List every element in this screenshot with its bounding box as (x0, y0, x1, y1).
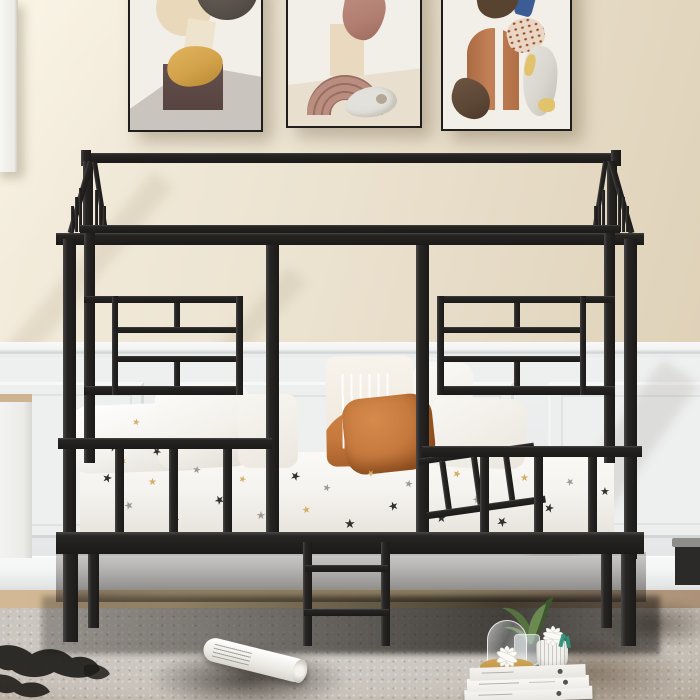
ladder-stile-right (381, 542, 390, 646)
bed-gable-left-slat (75, 197, 78, 232)
book-logo-dot (563, 680, 568, 685)
headboard-right-divider-h2 (444, 356, 580, 362)
book-stack (463, 664, 594, 700)
ladder-stile-left (303, 542, 312, 646)
nightstand-left (0, 394, 32, 558)
star-motif: ★ (256, 510, 266, 521)
wall-art-right (441, 0, 572, 131)
book-logo-dot (556, 691, 561, 696)
headboard-right-divider-v2-bottom (514, 362, 520, 386)
bed-gable-right-slat (602, 190, 605, 230)
guardrail-right-bar (480, 457, 489, 535)
art2-stone-hole (376, 94, 387, 104)
guardrail-right-bar (534, 457, 543, 535)
star-motif: ★ (344, 518, 356, 531)
ladder-rung-lower (304, 609, 389, 616)
book-spine-text-line (529, 681, 555, 683)
partial-canvas-top-left (0, 0, 18, 172)
bed-leg-back-left (88, 554, 99, 628)
headboard-left-top-bar (84, 296, 242, 303)
room-scene: ★ ★ ★ ★ ★ ★ ★ ★ ★ ★ ★ ★ ★ ★ ★ ★ ★ ★ ★ ★ … (0, 0, 700, 700)
bed-roof-ridge-beam (86, 153, 616, 163)
wall-art-left (128, 0, 263, 132)
headboard-left-bottom-bar (84, 386, 242, 395)
bed-gable-right-slat (622, 197, 625, 232)
bench-top-surface (672, 538, 700, 547)
star-motif: ★ (131, 418, 141, 428)
guardrail-left-bar (223, 449, 232, 535)
bench-body (675, 547, 700, 585)
bed-top-rail-front (56, 233, 644, 245)
guardrail-right-bar (588, 457, 597, 535)
decor-book-stack-group (460, 594, 640, 700)
guardrail-left-top-rail (58, 438, 272, 449)
star-motif: ★ (403, 479, 414, 490)
footboard-slat (503, 452, 516, 500)
lotus-flower (488, 642, 526, 668)
headboard-left-divider-v2-top (174, 303, 180, 327)
bed-post-front-left (63, 239, 76, 559)
bed-gable-left-slat (95, 190, 98, 230)
headboard-right-bottom-bar (437, 386, 615, 395)
guardrail-left-bar (169, 449, 178, 535)
bed-base-rail (56, 532, 644, 554)
book-spine-text-line (482, 672, 514, 674)
book-spine-text-line (478, 694, 512, 696)
guardrail-right-top-rail (422, 446, 642, 457)
headboard-right-top-bar (437, 296, 615, 303)
star-motif: ★ (148, 478, 157, 488)
star-motif: ★ (301, 505, 312, 516)
headboard-right-divider-v1 (580, 296, 586, 395)
bed-post-back-right (604, 233, 615, 463)
bed-post-front-right (624, 239, 637, 559)
ladder-rung-upper (305, 565, 388, 572)
art3-yellow-accent-bottom (538, 98, 555, 112)
book-logo-dot (558, 669, 563, 674)
bed-gable-left-slat (71, 206, 74, 232)
headboard-left-divider-v2-bottom (174, 362, 180, 386)
bench-right (672, 538, 700, 586)
headboard-left-right-edge (236, 296, 243, 395)
headboard-right-left-edge (437, 296, 444, 395)
nightstand-left-wood-top (0, 394, 32, 402)
book-spine-text-line (479, 682, 519, 684)
chair-rail-molding (0, 342, 700, 357)
bed-post-back-left (84, 233, 95, 463)
bed-gable-right-slat (626, 206, 629, 232)
footboard-slat (439, 461, 452, 509)
headboard-left-divider-v1 (112, 296, 118, 395)
star-motif: ★ (600, 486, 610, 497)
bed-post-mid-left (266, 245, 279, 545)
headboard-left-divider-h1 (118, 327, 236, 333)
headboard-right-divider-h1 (444, 327, 580, 333)
star-motif: ★ (191, 465, 202, 476)
art3-arch-gap (495, 28, 503, 110)
headboard-right-divider-v2-top (514, 303, 520, 327)
guardrail-left-bar (115, 449, 124, 535)
wall-art-middle (286, 0, 422, 128)
crayon-teal (565, 636, 571, 649)
bed-top-rail-back (80, 225, 620, 233)
bed-leg-front-left (63, 554, 78, 642)
